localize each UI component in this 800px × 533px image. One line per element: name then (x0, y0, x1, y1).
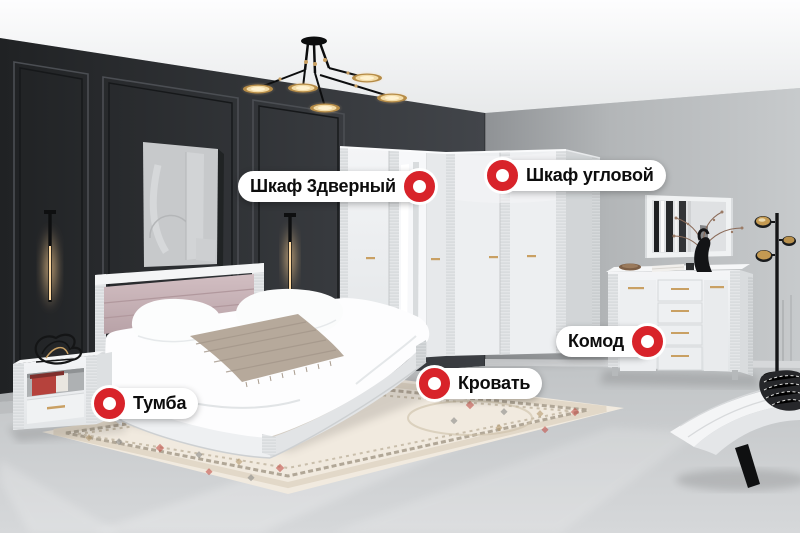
hotspot-label[interactable]: Шкаф угловой (496, 160, 666, 191)
hotspot-marker-icon[interactable] (94, 388, 125, 419)
hotspot-marker-icon[interactable] (632, 326, 663, 357)
hotspot-bed[interactable]: Кровать (419, 368, 542, 399)
furniture-showroom-image: Шкаф 3дверный Шкаф угловой Комод Кровать… (0, 0, 800, 533)
hotspot-wardrobe-3door[interactable]: Шкаф 3дверный (238, 171, 435, 202)
hotspot-label[interactable]: Шкаф 3дверный (238, 171, 426, 202)
hotspot-wardrobe-corner[interactable]: Шкаф угловой (487, 160, 666, 191)
hotspot-marker-icon[interactable] (419, 368, 450, 399)
wall-art (143, 142, 224, 268)
hotspot-dresser[interactable]: Комод (556, 326, 663, 357)
hotspot-nightstand[interactable]: Тумба (94, 388, 198, 419)
wall-mirror (646, 195, 732, 258)
hotspot-marker-icon[interactable] (487, 160, 518, 191)
dresser (606, 264, 753, 380)
room-scene (0, 0, 800, 533)
hotspot-marker-icon[interactable] (404, 171, 435, 202)
